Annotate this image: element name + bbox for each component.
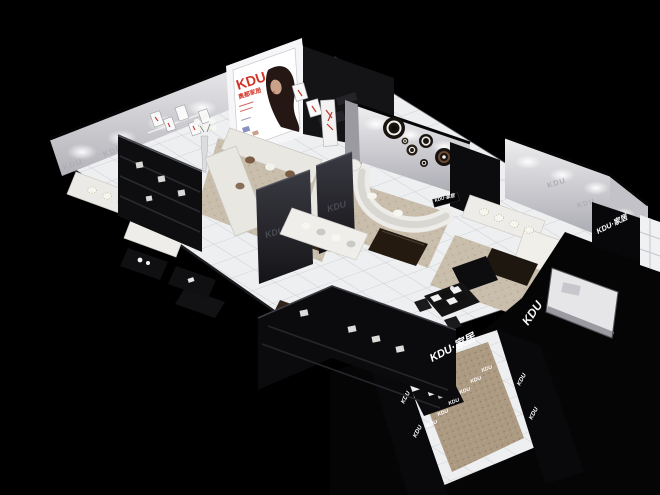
spotlight-glow: [67, 144, 97, 160]
wall-disc: [402, 138, 409, 145]
showroom-scene: KDU KDU KDU 奥都家居: [0, 0, 660, 495]
showroom-render: KDU KDU KDU 奥都家居: [0, 0, 660, 495]
spotlight-glow: [515, 155, 541, 169]
spotlight-glow: [583, 181, 609, 195]
wall-disc: [419, 134, 433, 148]
sofa-pillow: [367, 193, 377, 200]
white-flower-decor: [146, 261, 150, 265]
wall-disc: [420, 159, 428, 167]
wall-disc: [407, 145, 418, 156]
white-flower-decor: [138, 258, 143, 263]
centerpiece: [450, 286, 454, 290]
sofa-pillow: [393, 210, 403, 217]
wall-disc: [383, 117, 405, 139]
model-lips: [273, 91, 275, 93]
art-pillar: [320, 100, 337, 147]
